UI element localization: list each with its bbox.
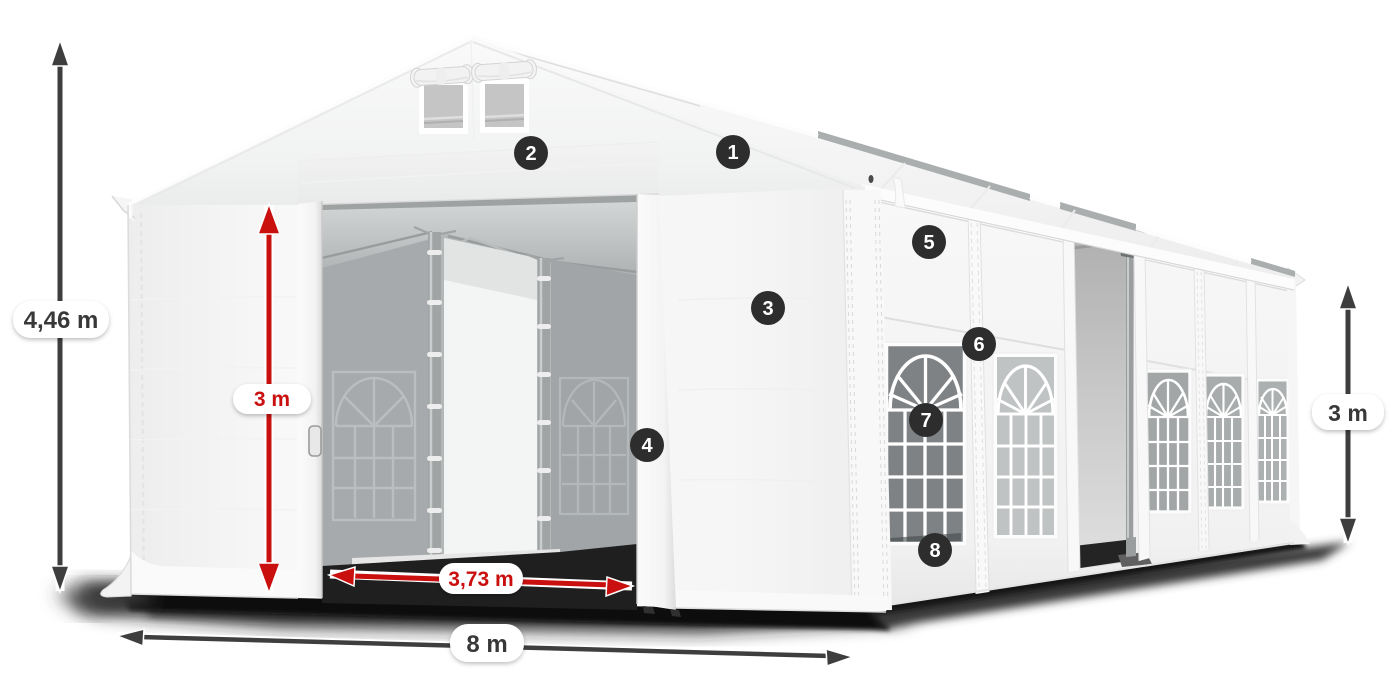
svg-text:7: 7 (920, 410, 931, 432)
svg-text:3 m: 3 m (254, 388, 290, 411)
svg-text:5: 5 (923, 232, 934, 254)
svg-text:8 m: 8 m (466, 631, 507, 658)
svg-text:3: 3 (762, 298, 773, 320)
svg-text:6: 6 (973, 334, 984, 356)
svg-text:4: 4 (641, 435, 653, 457)
svg-text:8: 8 (929, 540, 940, 562)
svg-text:4,46 m: 4,46 m (24, 307, 99, 334)
svg-text:3,73 m: 3,73 m (448, 568, 513, 591)
svg-text:1: 1 (727, 142, 738, 164)
svg-text:3 m: 3 m (1328, 400, 1368, 426)
svg-text:2: 2 (525, 143, 536, 165)
